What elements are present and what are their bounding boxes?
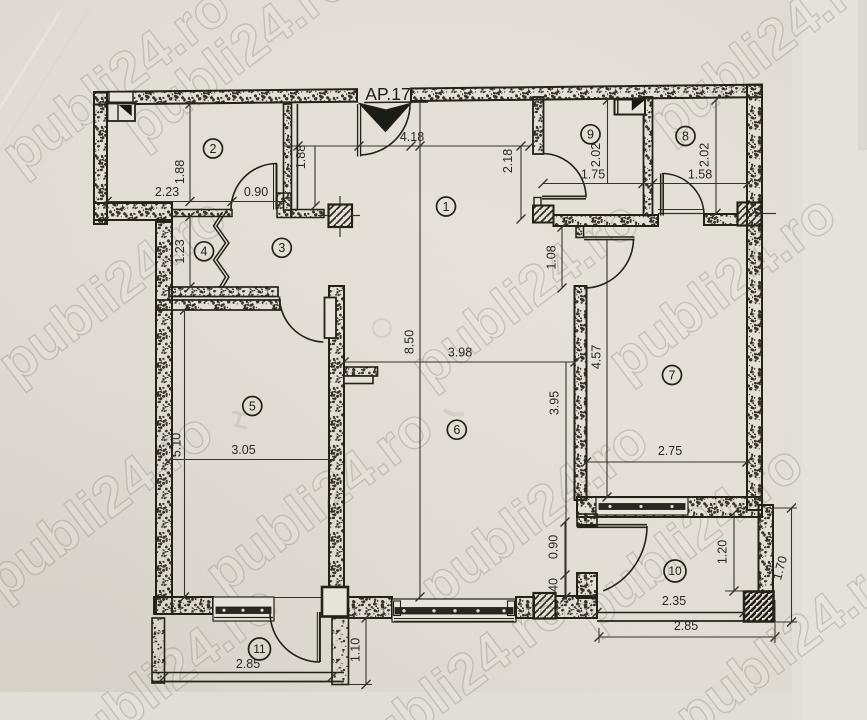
svg-text:2.02: 2.02: [589, 143, 603, 167]
svg-text:11: 11: [253, 642, 266, 656]
svg-text:3.98: 3.98: [448, 346, 472, 360]
svg-text:1.08: 1.08: [545, 245, 559, 269]
svg-text:1.10: 1.10: [349, 638, 363, 662]
svg-text:2: 2: [210, 142, 217, 156]
svg-text:10: 10: [668, 564, 682, 578]
svg-text:5.10: 5.10: [170, 433, 184, 457]
svg-text:2.18: 2.18: [501, 149, 515, 173]
svg-text:1.20: 1.20: [716, 540, 730, 564]
svg-text:1.75: 1.75: [581, 168, 605, 182]
svg-text:4.57: 4.57: [590, 345, 604, 369]
svg-text:1.88: 1.88: [294, 145, 308, 169]
svg-text:8.50: 8.50: [403, 330, 417, 354]
svg-text:3.05: 3.05: [231, 443, 255, 457]
svg-text:5: 5: [249, 399, 256, 413]
svg-text:0.90: 0.90: [244, 185, 268, 199]
svg-text:1: 1: [443, 200, 450, 214]
svg-text:1.88: 1.88: [173, 160, 187, 184]
svg-text:2.23: 2.23: [155, 185, 179, 199]
svg-text:2.75: 2.75: [658, 444, 682, 458]
svg-text:8: 8: [682, 129, 689, 143]
svg-text:3: 3: [278, 241, 285, 255]
svg-text:2.02: 2.02: [698, 143, 712, 167]
svg-text:3.95: 3.95: [548, 391, 562, 415]
svg-text:6: 6: [453, 423, 460, 437]
svg-text:0.90: 0.90: [547, 535, 561, 559]
svg-text:4: 4: [201, 245, 208, 259]
svg-text:2.85: 2.85: [674, 619, 698, 633]
svg-text:1.58: 1.58: [688, 168, 712, 182]
svg-text:9: 9: [587, 128, 594, 142]
svg-text:7: 7: [669, 368, 676, 382]
svg-text:AP.17: AP.17: [365, 84, 410, 104]
svg-text:2.35: 2.35: [662, 594, 686, 608]
svg-text:40: 40: [547, 578, 561, 592]
svg-text:1.23: 1.23: [173, 239, 187, 263]
